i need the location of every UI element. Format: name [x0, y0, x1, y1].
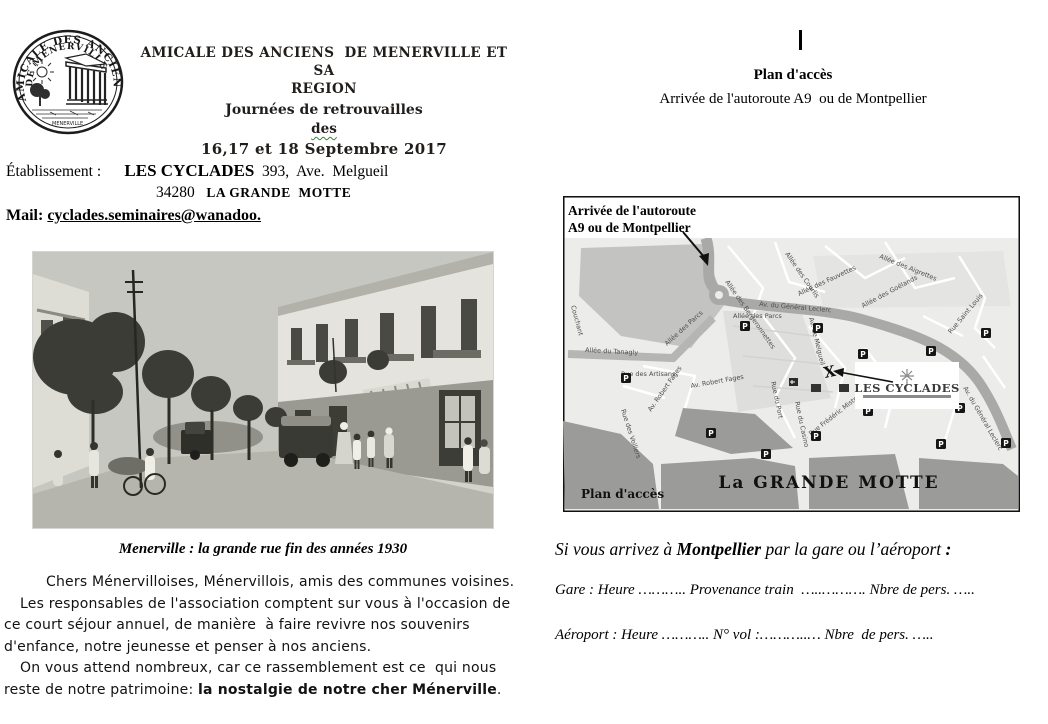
parking-icon: P [813, 432, 819, 441]
map-arrival-label-line1: Arrivée de l'autoroute [568, 203, 696, 218]
mail-label: Mail: [6, 207, 43, 224]
establishment-city: LA GRANDE MOTTE [206, 185, 351, 200]
map-corner-label: Plan d'accès [581, 487, 664, 501]
access-map: Av. du Général Leclerc Av. du Général Le… [563, 196, 1020, 512]
map-arrival-label-line2: A9 ou de Montpellier [568, 220, 691, 235]
header-des-word: des [128, 120, 520, 138]
parking-icon: P [763, 450, 769, 459]
landmark-icon [811, 384, 821, 392]
gare-fill-line: Gare : Heure ……….. Provenance train …..…… [555, 582, 1035, 599]
landmark-icon [839, 384, 849, 392]
association-seal-logo: AMICALE DES ANCIENS DE MENERVILLE [10, 28, 126, 138]
mail-line: Mail: cyclades.seminaires@wanadoo. [6, 207, 261, 225]
plan-access-subtitle: Arrivée de l'autoroute A9 ou de Montpell… [563, 91, 1023, 108]
hotel-label-box: LES CYCLADES [854, 362, 960, 409]
establishment-zip: 34280 [156, 184, 195, 201]
letter-paragraph: Chers Ménervilloises, Ménervillois, amis… [4, 572, 522, 701]
header-subtitle: Journées de retrouvailles [128, 100, 520, 120]
parking-icon: P [1003, 439, 1009, 448]
text-cursor [799, 30, 802, 50]
arrival-intro-line: Si vous arrivez à Montpellier par la gar… [555, 539, 1035, 560]
vintage-street-photo [33, 252, 493, 528]
map-city-label: La GRANDE MOTTE [718, 473, 939, 493]
header-title-line1: AMICALE DES ANCIENS DE MENERVILLE ET SA [128, 44, 520, 80]
establishment-block: Établissement : LES CYCLADES 393, Ave. M… [6, 161, 526, 202]
parking-icon: P [742, 322, 748, 331]
parking-icon: P [815, 324, 821, 333]
paragraph-body: Les responsables de l'association compte… [4, 594, 522, 659]
seal-base-text: MENERVILLE [52, 121, 83, 127]
parking-icon: P [928, 347, 934, 356]
map-arrival-label: Arrivée de l'autoroute A9 ou de Montpell… [565, 199, 715, 238]
photo-caption: Menerville : la grande rue fin des année… [33, 541, 493, 558]
document-header: AMICALE DES ANCIENS DE MENERVILLE ET SA … [128, 44, 520, 159]
establishment-label: Établissement : [6, 163, 101, 180]
mail-address-link[interactable]: cyclades.seminaires@wanadoo. [47, 207, 261, 224]
parking-icon: P [623, 374, 629, 383]
establishment-name: LES CYCLADES [124, 161, 254, 180]
plan-access-title: Plan d'accès [563, 67, 1023, 84]
hotel-label: LES CYCLADES [854, 381, 960, 395]
paragraph-closing: On vous attend nombreux, car ce rassembl… [4, 658, 522, 701]
parking-icon: P [983, 329, 989, 338]
arrival-city-bold: Montpellier [677, 539, 762, 559]
parking-icon: P [860, 350, 866, 359]
header-dates: 16,17 et 18 Septembre 2017 [128, 139, 520, 159]
establishment-address: 393, Ave. Melgueil [262, 163, 388, 180]
header-title-line2: REGION [128, 80, 520, 98]
paragraph-line-greeting: Chers Ménervilloises, Ménervillois, amis… [4, 572, 522, 594]
aeroport-fill-line: Aéroport : Heure ……….. N° vol :………..… Nb… [555, 627, 1035, 644]
document-page: AMICALE DES ANCIENS DE MENERVILLE [0, 0, 1048, 724]
parking-icon: P [708, 429, 714, 438]
parking-icon: P [938, 440, 944, 449]
